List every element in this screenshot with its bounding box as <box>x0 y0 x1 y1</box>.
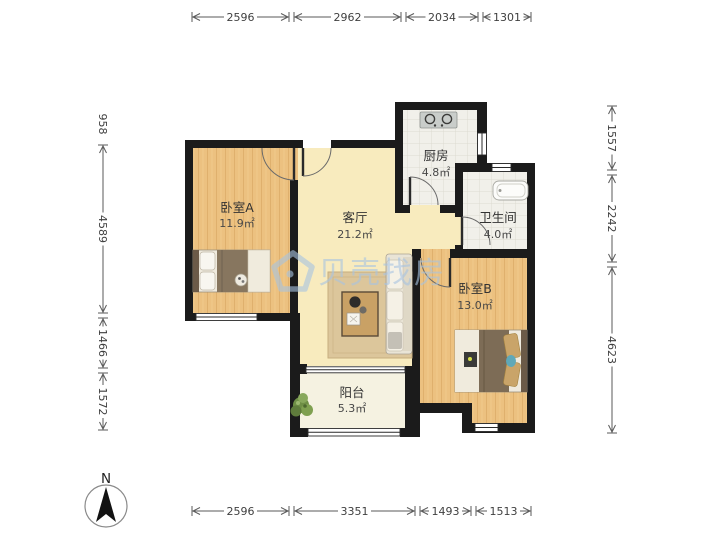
dimension-bottom-4: 1513 <box>476 504 531 518</box>
dimension-top-1: 2596 <box>192 10 289 24</box>
window-balcony <box>308 429 400 437</box>
dimension-top-4: 1301 <box>483 10 531 24</box>
dimension-top-2: 2962 <box>294 10 401 24</box>
hallway-floor <box>403 213 463 249</box>
dimension-value: 1301 <box>493 11 521 24</box>
dimension-value: 958 <box>96 114 109 135</box>
dimension-bottom-3: 1493 <box>420 504 471 518</box>
compass-needle-icon <box>96 487 116 522</box>
dimension-right-2: 2242 <box>605 175 619 262</box>
room-name-bathroom: 卫生间 <box>479 210 517 225</box>
dimension-right-1: 1557 <box>605 106 619 170</box>
floor-plan: 卧室A 11.9㎡ 客厅 21.2㎡ 厨房 4.8㎡ 卫生间 4.0㎡ 卧室B … <box>0 0 720 540</box>
room-name-kitchen: 厨房 <box>423 148 448 163</box>
dimension-value: 3351 <box>341 505 369 518</box>
dimension-value: 4589 <box>96 215 109 243</box>
dimension-top-3: 2034 <box>406 10 478 24</box>
dimension-left-2: 4589 <box>96 145 110 313</box>
room-name-bedroom-b: 卧室B <box>458 281 492 296</box>
dimension-bottom-2: 3351 <box>294 504 415 518</box>
dimension-value: 1572 <box>96 388 109 416</box>
room-area-bedroom-a: 11.9㎡ <box>219 217 255 230</box>
dimension-bottom-1: 2596 <box>192 504 289 518</box>
dimension-left-4: 1572 <box>96 373 110 430</box>
dimension-value: 4623 <box>605 336 618 364</box>
bathtub-icon <box>493 181 528 200</box>
room-area-bedroom-b: 13.0㎡ <box>457 299 493 312</box>
window-bathroom <box>492 164 511 172</box>
north-arrow: N <box>85 471 127 527</box>
sliding-door-balcony <box>306 367 405 373</box>
stove-icon <box>420 112 457 128</box>
floor-plan-page: 卧室A 11.9㎡ 客厅 21.2㎡ 厨房 4.8㎡ 卫生间 4.0㎡ 卧室B … <box>0 0 720 540</box>
room-area-living: 21.2㎡ <box>337 228 373 241</box>
dimension-value: 2034 <box>428 11 456 24</box>
room-name-balcony: 阳台 <box>339 385 364 400</box>
dimension-value: 1493 <box>432 505 460 518</box>
dimension-value: 2962 <box>334 11 362 24</box>
dimension-value: 1466 <box>96 329 109 357</box>
room-area-kitchen: 4.8㎡ <box>422 166 451 179</box>
room-area-bathroom: 4.0㎡ <box>484 228 513 241</box>
bed-icon-bedroom-b <box>455 330 527 392</box>
dimension-left-3: 1466 <box>96 318 110 368</box>
dimension-value: 2596 <box>227 11 255 24</box>
watermark-text: 贝壳找房 <box>318 256 446 291</box>
dimension-value: 2242 <box>605 205 618 233</box>
dimension-value: 1513 <box>490 505 518 518</box>
room-name-living: 客厅 <box>342 210 367 225</box>
coffee-table-icon <box>342 292 378 336</box>
window-kitchen <box>478 133 487 155</box>
window-bedroom-b <box>475 424 498 432</box>
room-name-bedroom-a: 卧室A <box>220 200 254 215</box>
dimension-value: 2596 <box>227 505 255 518</box>
dimension-value: 1557 <box>605 124 618 152</box>
window-bedroom-a <box>196 314 257 321</box>
dimension-left-1: 958 <box>96 108 110 141</box>
dimension-right-3: 4623 <box>605 267 619 433</box>
bed-icon-bedroom-a <box>193 250 270 292</box>
room-area-balcony: 5.3㎡ <box>338 402 367 415</box>
